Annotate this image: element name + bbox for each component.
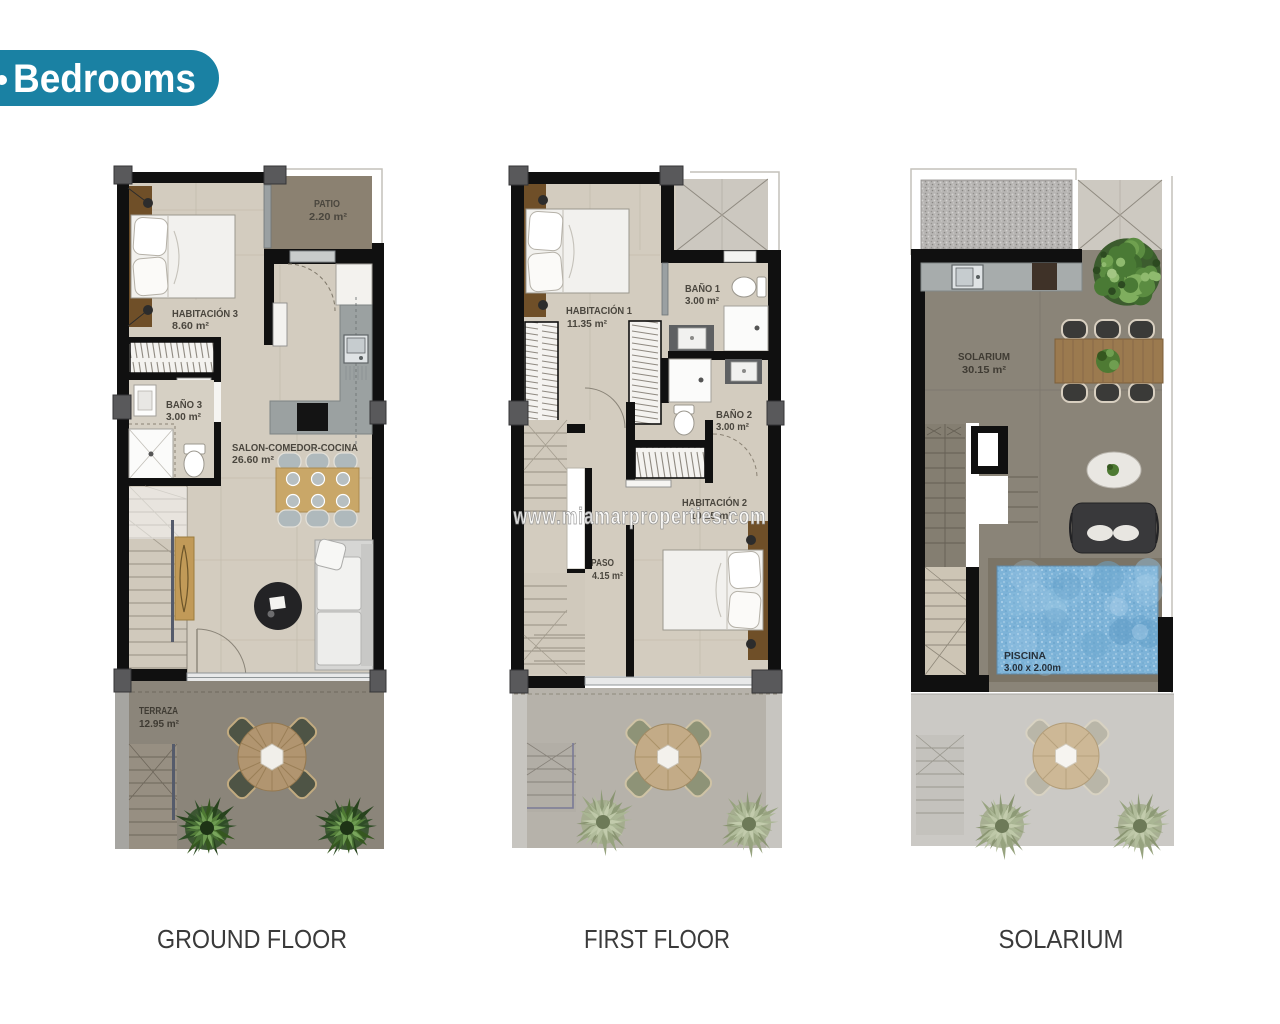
svg-text:SOLARIUM: SOLARIUM bbox=[999, 924, 1124, 954]
svg-text:HABITACIÓN 1: HABITACIÓN 1 bbox=[566, 304, 632, 317]
svg-text:BAÑO 3: BAÑO 3 bbox=[166, 398, 202, 411]
svg-text:HABITACIÓN 3: HABITACIÓN 3 bbox=[172, 307, 238, 320]
svg-text:26.60 m²: 26.60 m² bbox=[232, 454, 274, 466]
svg-text:3.00 m²: 3.00 m² bbox=[716, 422, 750, 433]
svg-text:PASO: PASO bbox=[591, 557, 614, 569]
svg-text:2.20 m²: 2.20 m² bbox=[309, 212, 348, 223]
svg-text:BAÑO 1: BAÑO 1 bbox=[685, 282, 720, 295]
svg-text:30.15 m²: 30.15 m² bbox=[962, 364, 1007, 376]
svg-text:GROUND FLOOR: GROUND FLOOR bbox=[157, 924, 347, 954]
svg-text:Bedrooms: Bedrooms bbox=[13, 57, 196, 101]
svg-text:SOLARIUM: SOLARIUM bbox=[958, 351, 1010, 363]
svg-text:TERRAZA: TERRAZA bbox=[139, 705, 178, 717]
svg-text:PISCINA: PISCINA bbox=[1004, 651, 1046, 662]
svg-text:FIRST FLOOR: FIRST FLOOR bbox=[584, 924, 730, 954]
svg-text:11.35 m²: 11.35 m² bbox=[567, 318, 607, 330]
svg-text:12.95 m²: 12.95 m² bbox=[139, 718, 179, 730]
svg-text:3.00 m²: 3.00 m² bbox=[166, 412, 202, 423]
svg-text:www.miamarproperties.com: www.miamarproperties.com bbox=[513, 503, 767, 529]
svg-text:PATIO: PATIO bbox=[314, 199, 340, 210]
svg-text:4.15 m²: 4.15 m² bbox=[592, 570, 623, 582]
svg-text:3.00 m²: 3.00 m² bbox=[685, 296, 720, 307]
svg-text:3.00 x 2.00m: 3.00 x 2.00m bbox=[1004, 663, 1061, 674]
svg-text:BAÑO 2: BAÑO 2 bbox=[716, 408, 752, 421]
svg-text:SALON-COMEDOR-COCINA: SALON-COMEDOR-COCINA bbox=[232, 442, 358, 454]
svg-text:8.60 m²: 8.60 m² bbox=[172, 320, 210, 332]
